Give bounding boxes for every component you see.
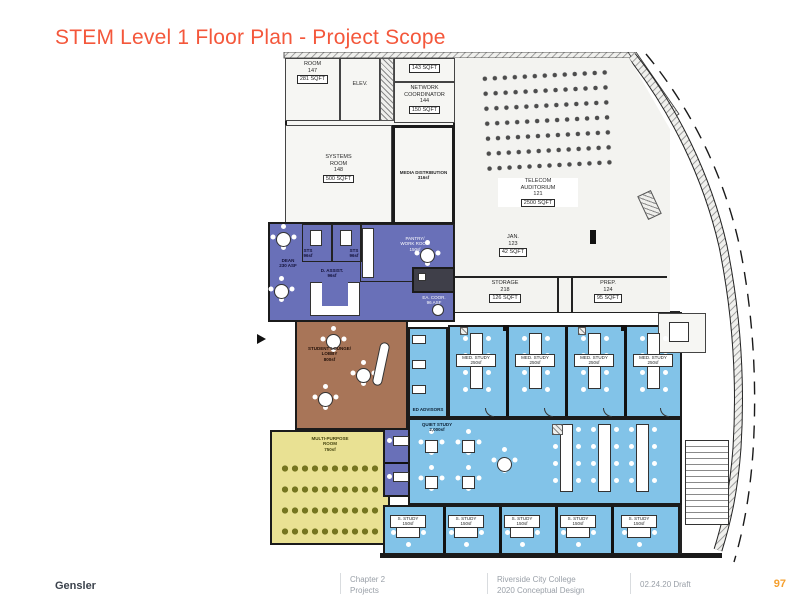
- table: [636, 424, 649, 492]
- elevator-room: ELEV.: [340, 58, 380, 121]
- table: [318, 392, 333, 407]
- table: [627, 527, 651, 538]
- systems-room: SYSTEMS ROOM 148 500 SQFT: [285, 125, 392, 225]
- room-label-med-study: MED. STUDY 250sf: [633, 354, 673, 367]
- page-title: STEM Level 1 Floor Plan - Project Scope: [55, 26, 446, 50]
- room-label-143: 143 SQFT: [395, 63, 454, 73]
- room-label-med-study: MED. STUDY 250sf: [456, 354, 496, 367]
- network-coordinator-room: NETWORK COORDINATOR 144 150 SQFT: [394, 82, 455, 123]
- room-label-147: ROOM 147 281 SQFT: [286, 61, 339, 84]
- footer-divider: [340, 573, 341, 594]
- stairwell: [685, 440, 729, 525]
- footer-chapter: Chapter 2 Projects: [350, 575, 385, 597]
- table: [462, 476, 475, 489]
- room-label-network: NETWORK COORDINATOR 144 150 SQFT: [395, 85, 454, 114]
- room-label-ea-coord: EA. COOR. 96 ASF: [416, 295, 452, 306]
- room-label-s-study: S. STUDY150sf: [621, 515, 657, 528]
- room-label-sts-2: STS 96sf: [342, 248, 366, 259]
- slide-page: STEM Level 1 Floor Plan - Project Scope: [0, 0, 800, 600]
- table: [510, 527, 534, 538]
- footer-date-draft: 02.24.20 Draft: [640, 580, 691, 591]
- table: [425, 476, 438, 489]
- corridor-room: [658, 313, 706, 353]
- table: [454, 527, 478, 538]
- table: [356, 368, 371, 383]
- restroom: [412, 267, 455, 293]
- room-143: 143 SQFT: [394, 58, 455, 82]
- room-label-s-study: S. STUDY150sf: [560, 515, 596, 528]
- room-label-prep: PREP. 124 95 SQFT: [578, 280, 638, 303]
- room-label-sts-1: STS 96sf: [296, 248, 320, 259]
- room-label-media: MEDIA DISTRIBUTION 316sf: [395, 170, 452, 181]
- room-label-s-study: S. STUDY150sf: [390, 515, 426, 528]
- room-label-systems: SYSTEMS ROOM 148 500 SQFT: [286, 154, 391, 183]
- room-label-pantry: PANTRY/ WORK ROOM 150sf: [390, 236, 440, 252]
- room-147: ROOM 147 281 SQFT: [285, 58, 340, 121]
- page-number: 97: [774, 578, 786, 590]
- table: [462, 440, 475, 453]
- room-label-med-study: MED. STUDY 250sf: [515, 354, 555, 367]
- room-label-multipurpose: MULTI-PURPOSE ROOM 750sf: [272, 436, 388, 452]
- table: [497, 457, 512, 472]
- ed-advisors-area: ED ADVISORS: [408, 327, 448, 418]
- room-label-auditorium: TELECOM AUDITORIUM 121 2500 SQFT: [498, 178, 578, 207]
- table: [598, 424, 611, 492]
- room-label-elev: ELEV.: [341, 81, 379, 88]
- room-label-advisors: ED ADVISORS: [410, 407, 446, 412]
- auditorium-seating: [479, 65, 616, 172]
- room-label-s-study: S. STUDY150sf: [448, 515, 484, 528]
- table: [566, 527, 590, 538]
- room-label-storage: STORAGE 218 126 SQFT: [465, 280, 545, 303]
- floor-plan: TELECOM AUDITORIUM 121 2500 SQFT JAN. 12…: [260, 52, 760, 564]
- multipurpose-seating: [280, 458, 380, 538]
- footer-divider: [630, 573, 631, 594]
- footer-client: Riverside City College 2020 Conceptual D…: [497, 575, 585, 597]
- room-label-quiet-study: QUIET STUDY 2,000sf: [412, 422, 462, 433]
- room-label-lounge: STUDENT LOUNGE/ LOBBY 800sf: [302, 346, 357, 362]
- student-lounge: [295, 320, 408, 430]
- table: [276, 232, 291, 247]
- table: [425, 440, 438, 453]
- room-label-s-study: S. STUDY150sf: [504, 515, 540, 528]
- room-label-dean-assist: D. ASSIST. 96sf: [312, 268, 352, 279]
- table: [432, 304, 444, 316]
- table: [274, 284, 289, 299]
- room-label-jan: JAN. 123 42 SQFT: [488, 234, 538, 257]
- elevator-shaft-hatch: [380, 58, 394, 121]
- brand-logo: Gensler: [55, 580, 96, 592]
- table: [396, 527, 420, 538]
- media-distribution-room: MEDIA DISTRIBUTION 316sf: [392, 125, 455, 225]
- footer-divider: [487, 573, 488, 594]
- room-label-med-study: MED. STUDY 250sf: [574, 354, 614, 367]
- direction-arrow-icon: [257, 334, 266, 344]
- room-label-dean: DEAN 230 ASF: [268, 258, 308, 269]
